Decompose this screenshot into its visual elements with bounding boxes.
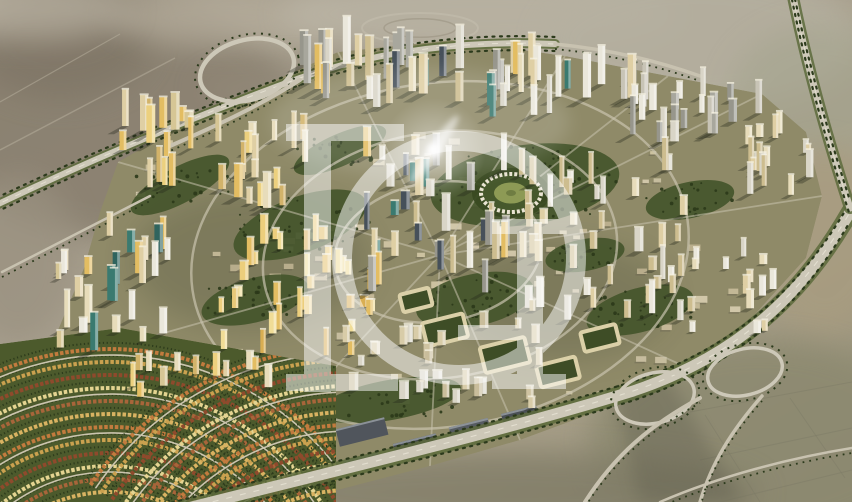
monogram-p-stem [304, 124, 331, 392]
monogram-i-bar [458, 325, 543, 340]
monogram-p-serif-top [286, 124, 404, 141]
monogram-i-serif-bottom [492, 374, 566, 389]
monogram-i-stem [517, 219, 543, 389]
aerial-masterplan-render [0, 0, 852, 502]
monogram-p-serif-bottom [286, 374, 398, 391]
city-masterplan-svg [0, 0, 852, 502]
